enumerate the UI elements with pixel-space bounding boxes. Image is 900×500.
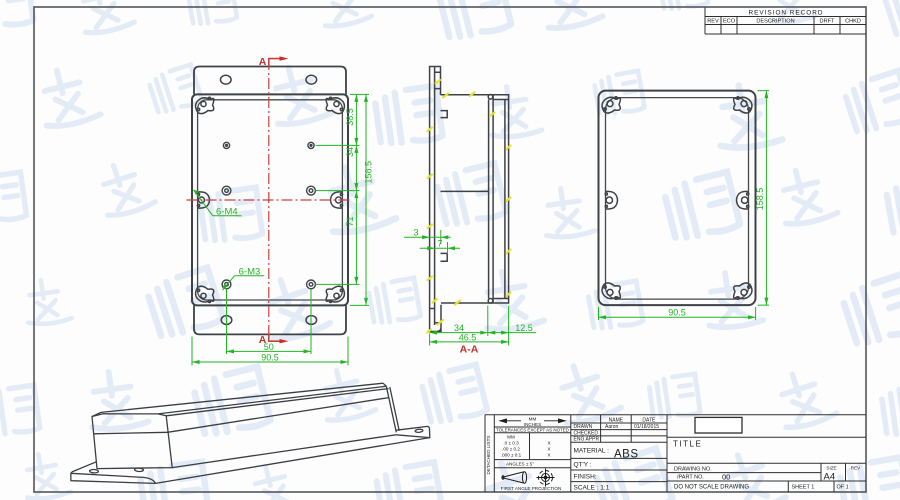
svg-text:6-M3: 6-M3 bbox=[239, 266, 261, 277]
svg-text:NAME: NAME bbox=[609, 417, 624, 423]
svg-text:FINISH:: FINISH: bbox=[574, 473, 597, 480]
svg-text:38.5: 38.5 bbox=[345, 108, 355, 126]
svg-text:.000 ± 0.1: .000 ± 0.1 bbox=[501, 453, 522, 458]
svg-text:ABS: ABS bbox=[614, 449, 639, 461]
svg-text:INCHES: INCHES bbox=[524, 422, 541, 427]
svg-text:A: A bbox=[259, 56, 267, 68]
svg-text:OF 1: OF 1 bbox=[837, 484, 849, 490]
svg-text:DESCRIPTION: DESCRIPTION bbox=[756, 19, 794, 25]
svg-text:DETACHED LISTS: DETACHED LISTS bbox=[486, 436, 491, 475]
svg-text:12.5: 12.5 bbox=[515, 323, 533, 333]
svg-text:X: X bbox=[547, 441, 550, 446]
svg-text:ANGLES ± 5°: ANGLES ± 5° bbox=[506, 461, 534, 466]
svg-text:DRAWING NO.: DRAWING NO. bbox=[674, 467, 712, 473]
svg-text:REV: REV bbox=[707, 19, 719, 25]
svg-text:SIZE: SIZE bbox=[826, 465, 836, 470]
svg-text:MM: MM bbox=[529, 417, 537, 422]
svg-text:00: 00 bbox=[722, 473, 730, 482]
svg-text:CHECKED: CHECKED bbox=[574, 430, 599, 436]
svg-text:TITLE: TITLE bbox=[673, 440, 702, 449]
svg-text:FIRST ANGLE PROJECTION: FIRST ANGLE PROJECTION bbox=[501, 486, 562, 491]
svg-text:A4: A4 bbox=[824, 471, 836, 482]
svg-text:REV: REV bbox=[851, 465, 861, 470]
svg-text:/PART NO.: /PART NO. bbox=[677, 475, 704, 481]
svg-text:90.5: 90.5 bbox=[261, 353, 279, 363]
svg-text:158.5: 158.5 bbox=[755, 188, 765, 211]
svg-text:X: X bbox=[547, 447, 550, 452]
svg-text:71: 71 bbox=[345, 216, 355, 226]
svg-text:MM: MM bbox=[507, 435, 515, 440]
svg-text:SCALE : 1:1: SCALE : 1:1 bbox=[574, 485, 610, 492]
svg-text:.00 ± 0.2: .00 ± 0.2 bbox=[502, 447, 520, 452]
svg-text:TOLERANCES EXCEPT AS NOTED: TOLERANCES EXCEPT AS NOTED bbox=[496, 427, 569, 432]
svg-text:158.5: 158.5 bbox=[364, 161, 374, 184]
svg-text:46.5: 46.5 bbox=[459, 333, 477, 343]
svg-text:34: 34 bbox=[345, 147, 355, 157]
svg-text:50: 50 bbox=[264, 342, 274, 352]
svg-text:6-M4: 6-M4 bbox=[216, 206, 238, 217]
svg-text:ECO: ECO bbox=[723, 19, 736, 25]
svg-text:SHEET 1: SHEET 1 bbox=[792, 484, 815, 490]
svg-text:3: 3 bbox=[413, 228, 418, 238]
svg-text:REVISION RECORD: REVISION RECORD bbox=[748, 10, 823, 17]
svg-text:ENG APPR: ENG APPR bbox=[574, 437, 600, 443]
svg-text:A-A: A-A bbox=[460, 344, 479, 356]
svg-text:DRFT: DRFT bbox=[820, 19, 835, 25]
svg-text:7: 7 bbox=[437, 239, 442, 249]
svg-text:DATE: DATE bbox=[642, 417, 656, 423]
svg-text:X: X bbox=[547, 453, 550, 458]
svg-text:.0 ± 0.3: .0 ± 0.3 bbox=[503, 441, 519, 446]
svg-text:DRAWN: DRAWN bbox=[574, 424, 593, 430]
svg-text:DO NOT SCALE DRAWING: DO NOT SCALE DRAWING bbox=[674, 484, 749, 490]
svg-text:CHKD: CHKD bbox=[845, 19, 861, 25]
svg-text:Aaron: Aaron bbox=[605, 424, 619, 430]
svg-text:34: 34 bbox=[454, 323, 464, 333]
svg-text:90.5: 90.5 bbox=[668, 307, 686, 317]
svg-text:01/18/2015: 01/18/2015 bbox=[634, 424, 659, 430]
svg-text:MATERIAL :: MATERIAL : bbox=[574, 448, 610, 455]
svg-text:QT'Y :: QT'Y : bbox=[574, 462, 592, 469]
